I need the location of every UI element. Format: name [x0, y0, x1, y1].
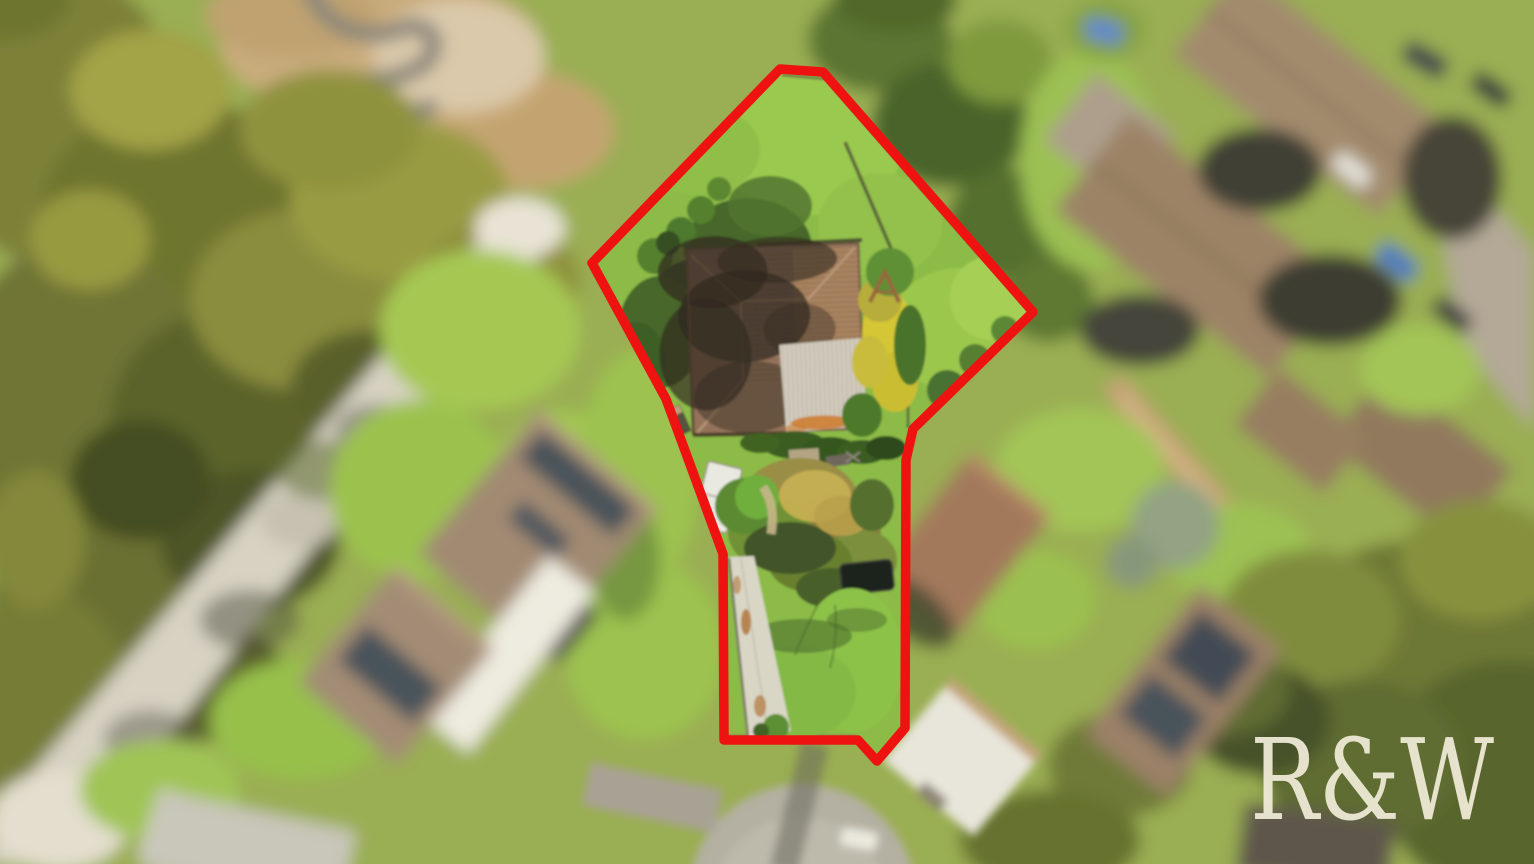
- agency-watermark: R&W: [1250, 716, 1494, 846]
- aerial-property-photo: R&W: [0, 0, 1534, 864]
- round-gray-tree-small: [1106, 536, 1158, 588]
